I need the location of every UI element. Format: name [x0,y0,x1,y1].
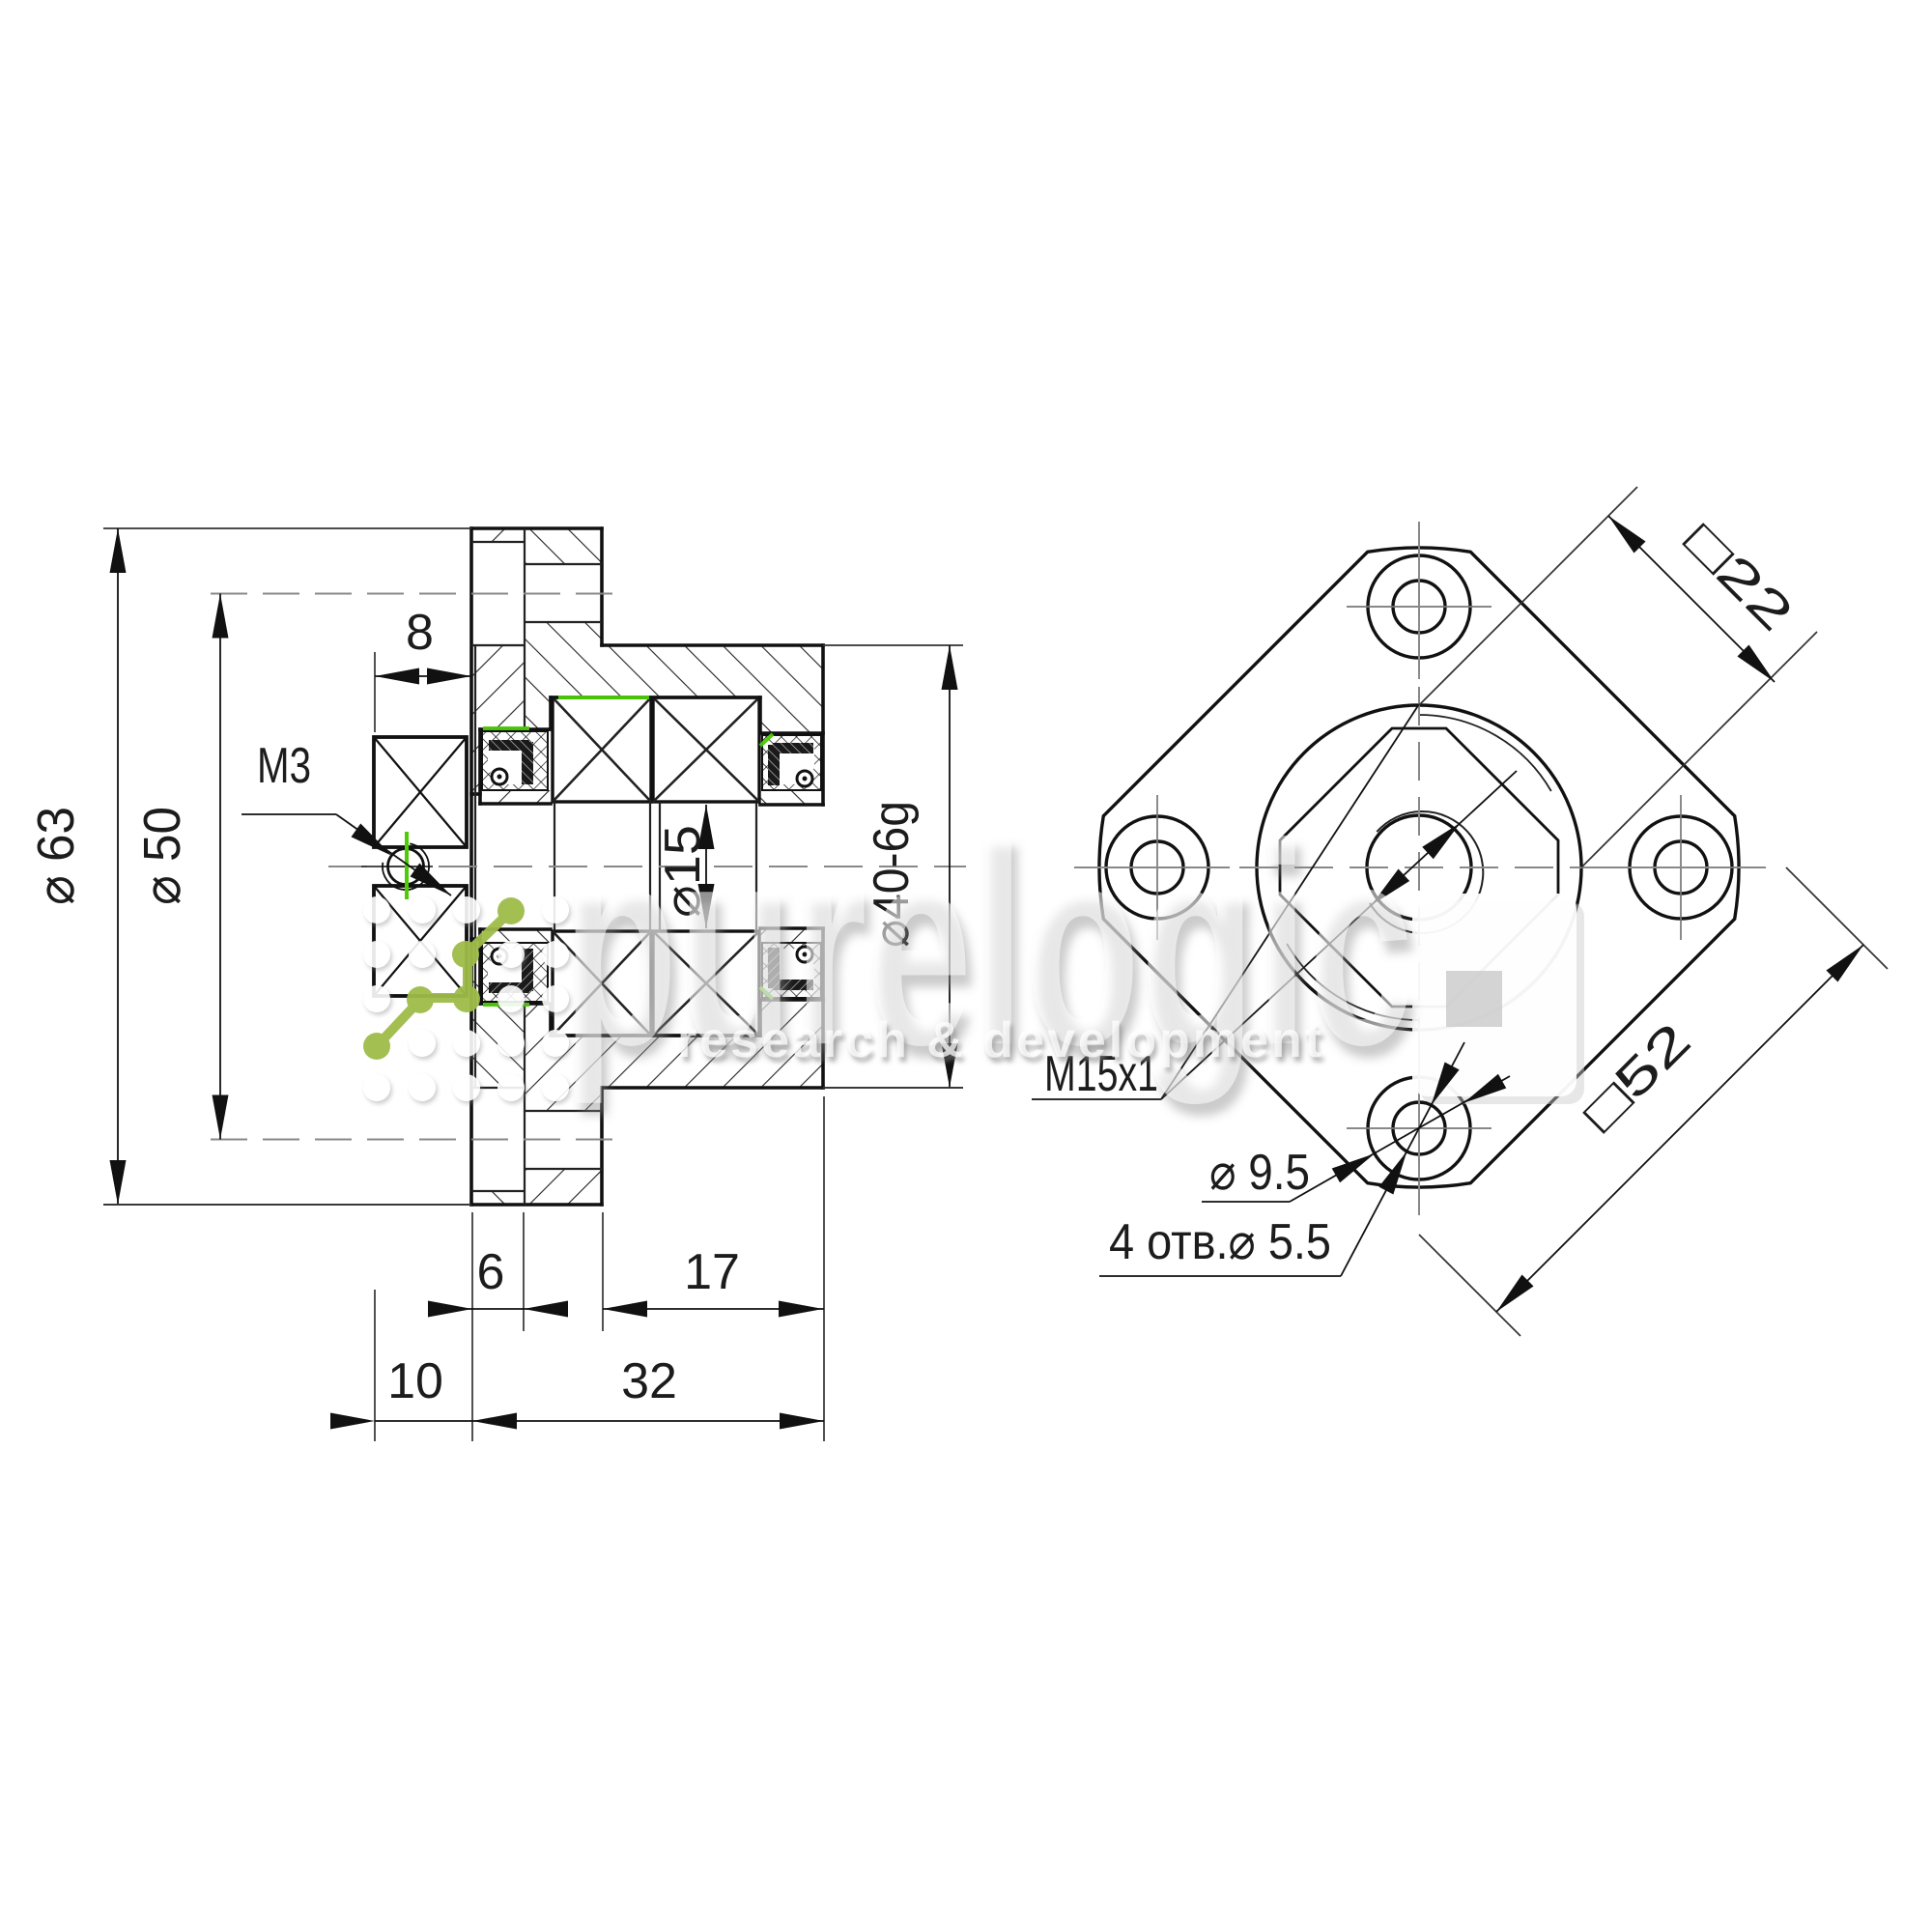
svg-text:⌀ 63: ⌀ 63 [27,807,85,905]
svg-text:6: 6 [477,1244,505,1300]
svg-text:⌀15: ⌀15 [655,825,711,918]
svg-text:10: 10 [387,1353,443,1409]
svg-text:M3: M3 [257,738,311,794]
svg-text:17: 17 [684,1244,740,1300]
svg-text:8: 8 [406,605,434,661]
svg-text:4 отв.⌀ 5.5: 4 отв.⌀ 5.5 [1109,1214,1331,1270]
svg-text:⌀ 9.5: ⌀ 9.5 [1209,1145,1310,1201]
svg-text:M15x1: M15x1 [1044,1046,1158,1102]
svg-text:32: 32 [621,1353,677,1409]
svg-text:⌀ 50: ⌀ 50 [133,807,191,905]
svg-text:⌀40-6g: ⌀40-6g [864,801,920,948]
